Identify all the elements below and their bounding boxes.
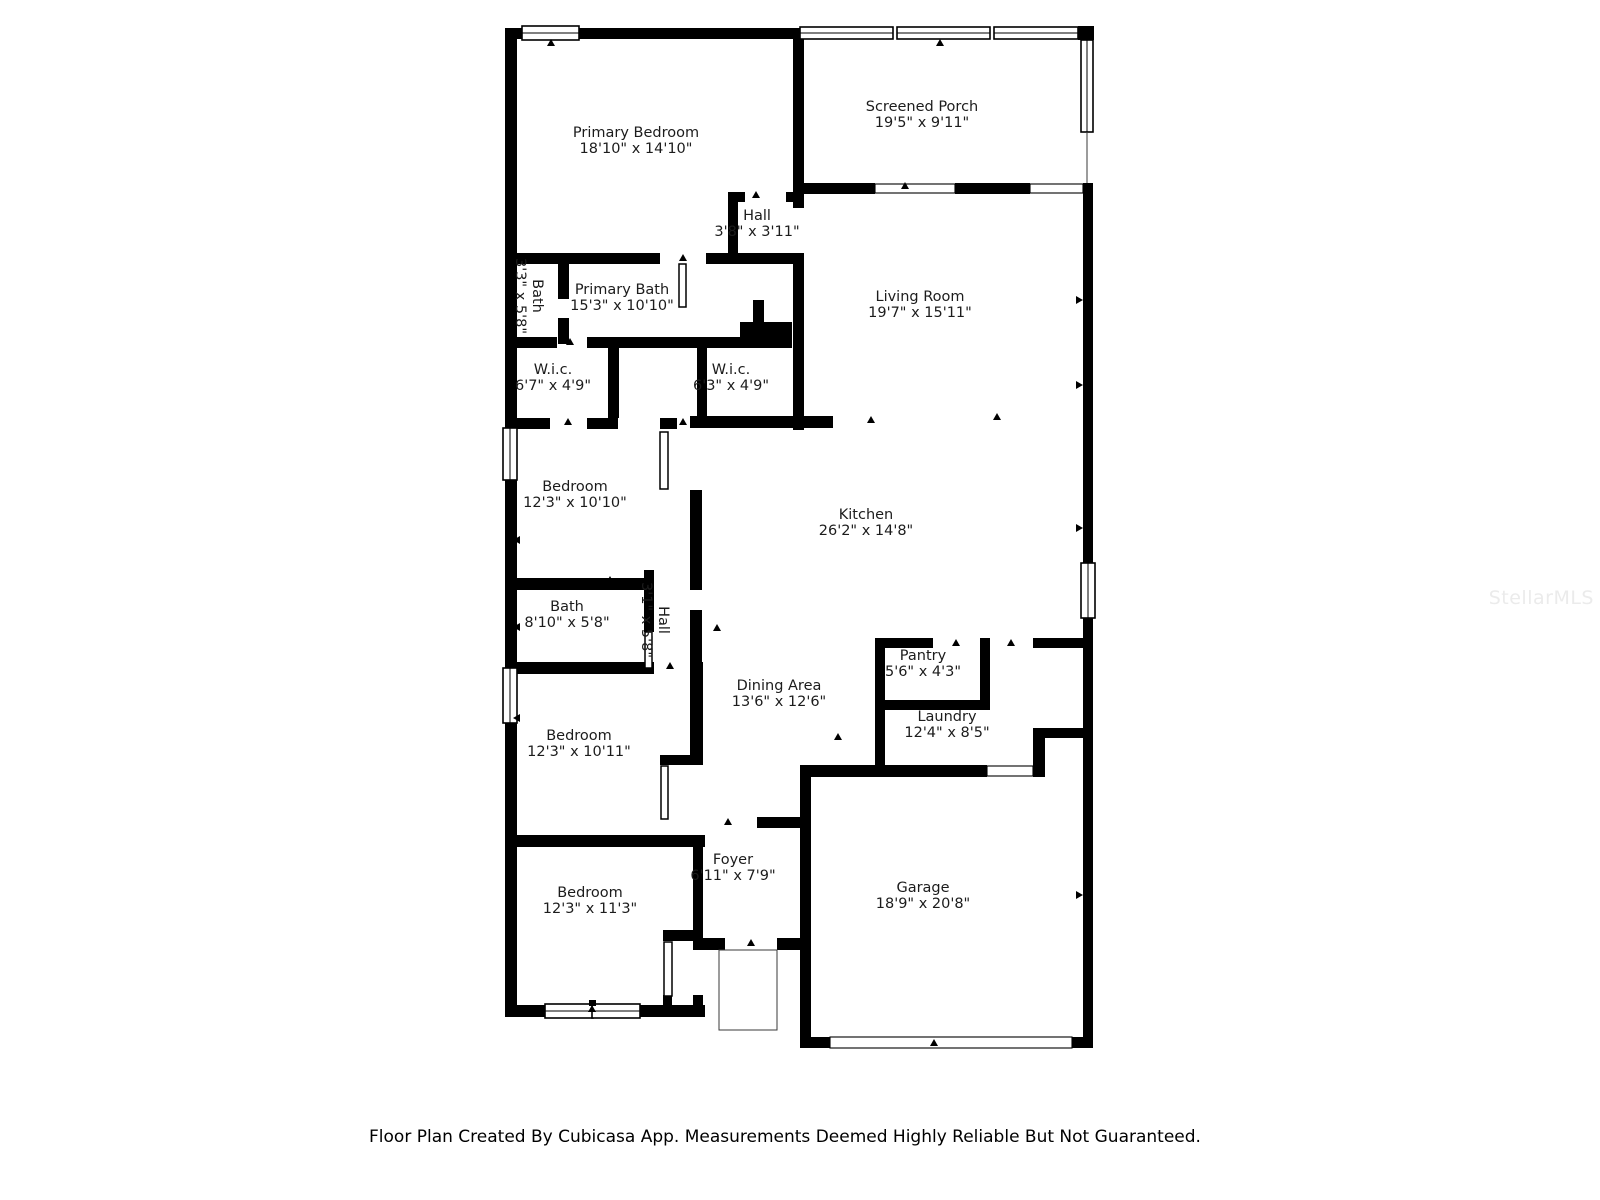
room-dims-text: 6'3" x 4'9" [693, 378, 769, 394]
floor-plan: Primary Bedroom 18'10" x 14'10" Screened… [0, 0, 1600, 1200]
room-label-bedroom-3: Bedroom 12'3" x 11'3" [543, 885, 637, 917]
room-label-kitchen: Kitchen 26'2" x 14'8" [819, 507, 913, 539]
room-name-text: W.i.c. [534, 362, 573, 378]
room-label-hall-upper: Hall 3'8" x 3'11" [714, 208, 799, 240]
room-label-hall-lower: Hall 3'1" x 5'8" [638, 582, 671, 658]
room-dims-text: 12'4" x 8'5" [904, 725, 989, 741]
porch-opening [875, 184, 955, 193]
room-dims-text: 15'3" x 10'10" [570, 298, 674, 314]
room-label-bedroom-1: Bedroom 12'3" x 10'10" [523, 479, 627, 511]
laundry-garage-door [987, 766, 1033, 776]
room-label-primary-bedroom: Primary Bedroom 18'10" x 14'10" [573, 125, 699, 157]
watermark: StellarMLS [1489, 587, 1594, 609]
room-label-foyer: Foyer 6'11" x 7'9" [690, 852, 775, 884]
room-dims-text: 8'10" x 5'8" [524, 615, 609, 631]
room-name-text: Pantry [900, 648, 947, 664]
room-dims-text: 3'1" x 5'8" [638, 582, 654, 658]
room-dims-text: 18'9" x 20'8" [876, 896, 970, 912]
room-label-dining-area: Dining Area 13'6" x 12'6" [732, 678, 826, 710]
room-name-text: Dining Area [737, 678, 822, 694]
room-name-text: Screened Porch [866, 99, 979, 115]
room-dims-text: 12'3" x 11'3" [543, 901, 637, 917]
room-name-text: Bedroom [542, 479, 608, 495]
room-name-text: Bath [550, 599, 584, 615]
room-name-text: Bath [529, 279, 545, 313]
garage-door [830, 1037, 1072, 1048]
room-label-living-room: Living Room 19'7" x 15'11" [868, 289, 972, 321]
room-name-text: Kitchen [839, 507, 894, 523]
room-dims-text: 12'3" x 10'10" [523, 495, 627, 511]
entry-stoop [719, 950, 777, 1030]
footer-caption: Floor Plan Created By Cubicasa App. Meas… [369, 1127, 1201, 1147]
room-label-primary-bath: Primary Bath 15'3" x 10'10" [570, 282, 674, 314]
door-leaf-icon [661, 766, 668, 819]
room-dims-text: 19'7" x 15'11" [868, 305, 972, 321]
room-dims-text: 12'3" x 10'11" [527, 744, 631, 760]
room-dims-text: 26'2" x 14'8" [819, 523, 913, 539]
room-label-laundry: Laundry 12'4" x 8'5" [904, 709, 989, 741]
room-dims-text: 6'7" x 4'9" [515, 378, 591, 394]
room-name-text: W.i.c. [712, 362, 751, 378]
room-labels: Primary Bedroom 18'10" x 14'10" Screened… [512, 99, 990, 917]
room-dims-text: 19'5" x 9'11" [875, 115, 969, 131]
room-label-wic-left: W.i.c. 6'7" x 4'9" [515, 362, 591, 394]
room-name-text: Bedroom [557, 885, 623, 901]
room-label-bath-2: Bath 8'10" x 5'8" [524, 599, 609, 631]
room-name-text: Living Room [875, 289, 964, 305]
room-dims-text: 18'10" x 14'10" [580, 141, 693, 157]
room-name-text: Hall [655, 606, 671, 634]
room-label-pantry: Pantry 5'6" x 4'3" [885, 648, 961, 680]
door-leaf-icon [679, 264, 686, 307]
room-label-bath-small: Bath 3'3" x 5'8" [512, 258, 545, 334]
door-leaf-icon [660, 432, 668, 489]
door-leaf-icon [664, 942, 672, 996]
room-name-text: Bedroom [546, 728, 612, 744]
room-name-text: Primary Bath [575, 282, 669, 298]
room-dims-text: 3'8" x 3'11" [714, 224, 799, 240]
room-name-text: Laundry [917, 709, 977, 725]
room-label-bedroom-2: Bedroom 12'3" x 10'11" [527, 728, 631, 760]
room-name-text: Foyer [713, 852, 753, 868]
room-name-text: Primary Bedroom [573, 125, 699, 141]
room-dims-text: 5'6" x 4'3" [885, 664, 961, 680]
floor-plan-page: Primary Bedroom 18'10" x 14'10" Screened… [0, 0, 1600, 1200]
room-dims-text: 13'6" x 12'6" [732, 694, 826, 710]
room-label-garage: Garage 18'9" x 20'8" [876, 880, 970, 912]
room-label-screened-porch: Screened Porch 19'5" x 9'11" [866, 99, 979, 131]
room-dims-text: 3'3" x 5'8" [512, 258, 528, 334]
room-name-text: Hall [743, 208, 771, 224]
room-name-text: Garage [896, 880, 949, 896]
porch-opening [1030, 184, 1083, 193]
room-dims-text: 6'11" x 7'9" [690, 868, 775, 884]
